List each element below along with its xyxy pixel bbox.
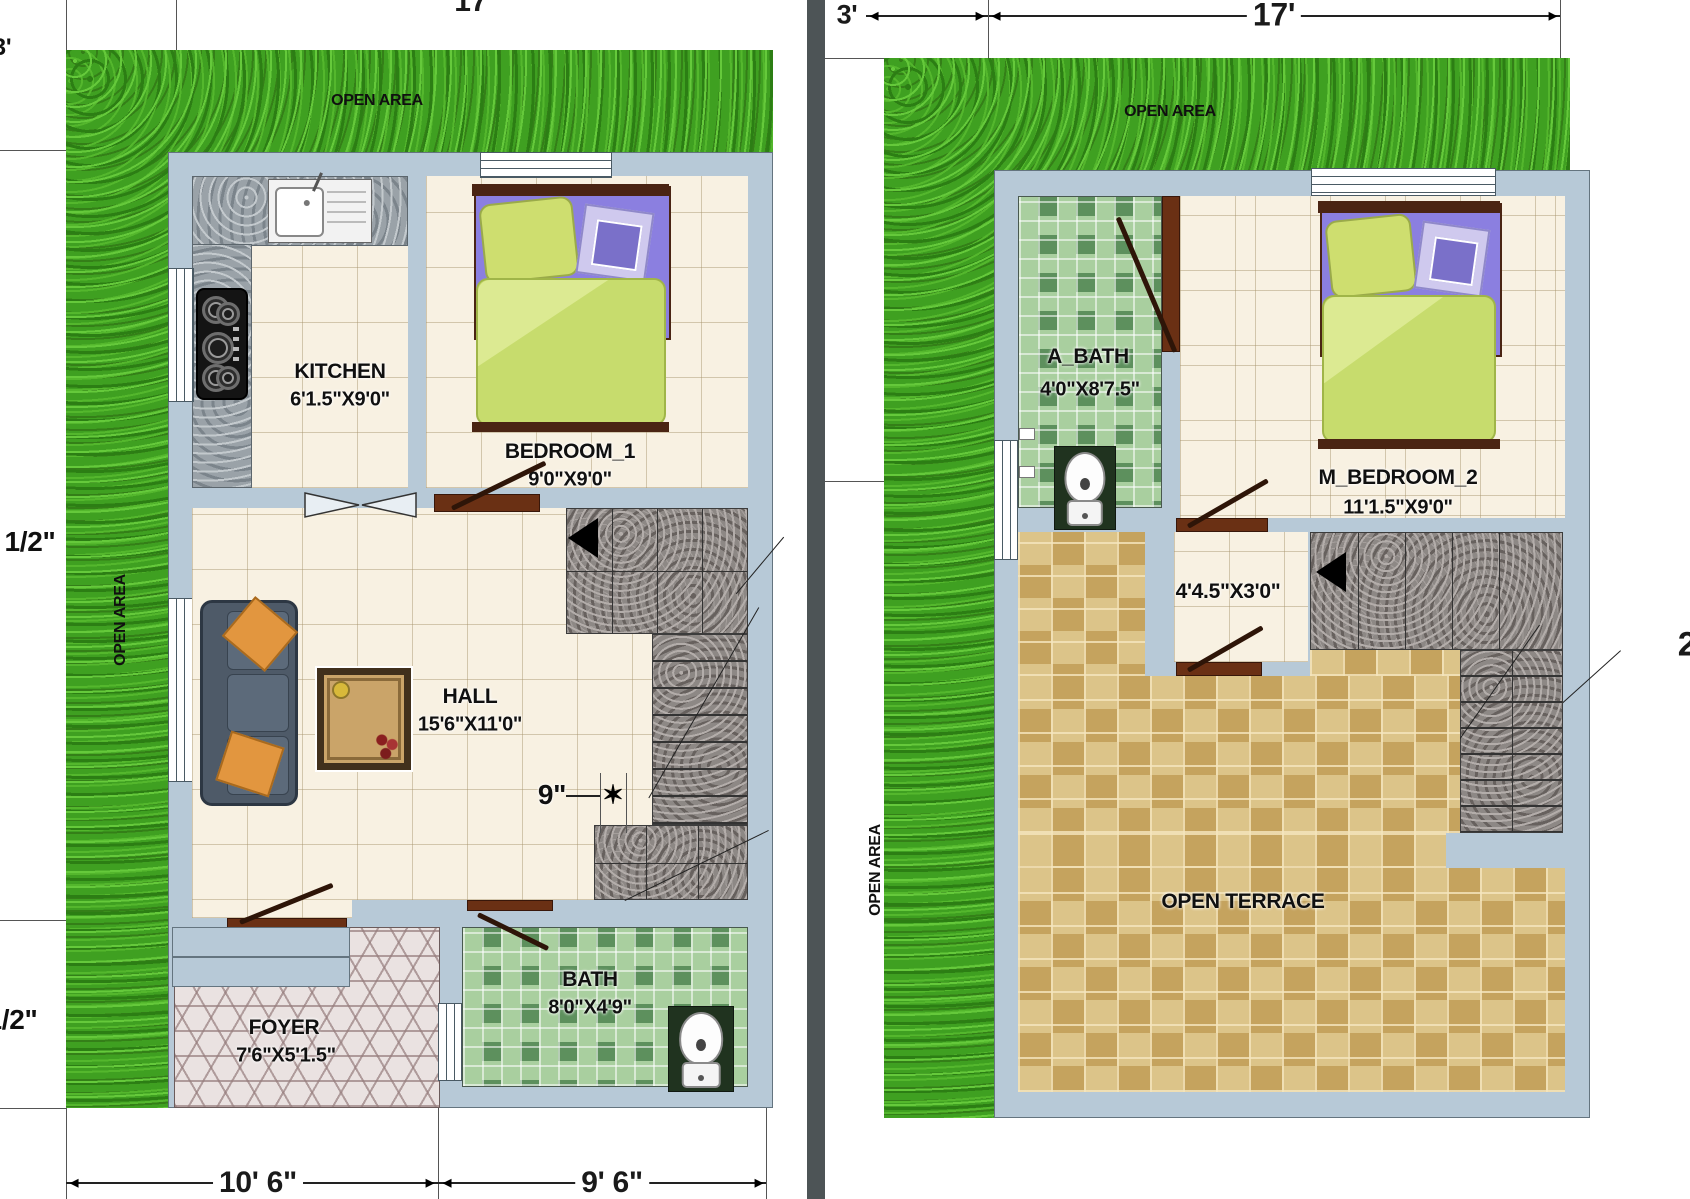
mbedroom2-size: 11'1.5"X9'0" [1343,497,1452,520]
open-area-side-grass [884,58,994,1118]
open-area-side-label: OPEN AREA [867,824,885,916]
extension-line [0,150,66,151]
bed-pillow [1324,213,1418,300]
hall-side-window [168,598,194,782]
stair-flight-right [1460,650,1563,833]
bed-duvet [476,278,666,426]
dim-bottom-left: 10' 6" [213,1166,303,1199]
toilet-button [1082,513,1088,519]
stair-direction-arrow-icon [1316,552,1346,592]
dim-side-right: 2 [1672,626,1690,665]
dim-side-lower: 1/2" [0,1004,38,1036]
arrowhead: ► [423,1176,438,1191]
rug-icon [317,668,411,770]
burner [202,332,234,364]
landing-size: 4'4.5"X3'0" [1176,580,1281,604]
sink-drainboard [327,191,366,231]
bed-headboard [1318,201,1500,213]
kitchen-label: KITCHEN [294,360,385,384]
bed-footboard [472,422,669,432]
dim-tick [626,773,627,833]
abath-label: A_BATH [1047,345,1129,369]
mbedroom2-window [1311,168,1496,196]
bedroom1-label: BEDROOM_1 [505,440,635,464]
hall-label: HALL [443,685,498,709]
toilet-hole [696,1039,706,1051]
arrowhead: ► [752,1176,767,1191]
dim-bottom-right: 9' 6" [575,1166,649,1199]
floor-plan-canvas: 17' 3' 1/2" 1/2" OPEN AREA OPEN AREA K [0,0,1690,1199]
passage-bowtie-icon [304,492,417,518]
stove-knobs [233,327,239,366]
open-terrace-label: OPEN TERRACE [1161,890,1324,914]
bed-icon [1320,203,1498,445]
toilet-icon [1054,446,1116,530]
bath-vent-window [438,1003,462,1081]
bath-door-sill [467,900,553,911]
bed-headboard [472,184,669,196]
stair-run-upper [1310,532,1563,650]
extension-line [1560,0,1561,58]
burner [216,302,240,326]
bed-icon [474,186,667,428]
plan-divider-bar [807,0,825,1199]
bed-duvet-fold [1324,297,1443,383]
arrowhead: ◄ [867,9,882,24]
bedroom1-window [480,152,612,178]
dim-leader-line [566,795,600,797]
gas-stove-icon [196,288,248,400]
bath-label: BATH [562,968,618,992]
extension-line [825,481,884,482]
bed-deco-pillow-inner [591,219,643,271]
entry-step [172,957,350,987]
side-window [994,440,1018,560]
rug-flowers [374,731,400,761]
stair-offset-dim: 9" [538,779,566,811]
rug-motif [332,681,350,699]
dimension-line [866,15,988,17]
toilet-button [698,1075,704,1081]
bed-deco-pillow [575,203,654,282]
bed-pillow [478,195,580,284]
terrace-left [1018,532,1145,676]
dimension-line [66,1182,766,1184]
bed-duvet [1322,295,1496,443]
arrowhead: ◄ [67,1176,82,1191]
stair-landing-lower [594,825,748,900]
bath-fixture [1019,428,1035,440]
open-area-top-label: OPEN AREA [331,92,423,110]
hall-size: 15'6"X11'0" [418,714,522,737]
extension-line [825,58,884,59]
bath-size: 8'0"X4'9" [548,997,632,1020]
foyer-size: 7'6"X5'1.5" [236,1045,336,1068]
abath-size: 4'0"X8'7.5" [1040,379,1140,402]
open-area-top-label: OPEN AREA [1124,103,1216,121]
foyer-label: FOYER [249,1016,320,1040]
bed-deco-pillow [1414,221,1491,298]
dim-setback-left: 3' [831,0,864,31]
dim-setback-left: 3' [0,34,11,62]
terrace-strip [1310,650,1460,676]
open-area-side-label: OPEN AREA [112,574,130,666]
bedroom1-size: 9'0"X9'0" [528,469,612,492]
dim-side-upper: 1/2" [5,526,56,558]
dim-top-width: 17' [1247,0,1301,34]
arrowhead: ◄ [440,1176,455,1191]
terrace-mid2 [1018,833,1446,868]
kitchen-sink-icon [268,179,372,243]
bed-footboard [1318,439,1500,449]
arrowhead: ◄ [989,9,1004,24]
bed-duvet-fold [478,280,608,366]
mbedroom2-label: M_BEDROOM_2 [1319,466,1478,490]
dim-star-marker: ✶ [602,780,624,811]
toilet-icon [668,1006,734,1092]
bed-deco-pillow-inner [1428,236,1479,287]
arrowhead: ► [973,9,988,24]
dim-tick [600,773,601,833]
kitchen-side-window [168,268,194,402]
bath-fixture [1019,466,1035,478]
entry-step [172,927,350,957]
sink-drain [304,200,310,206]
kitchen-size: 6'1.5"X9'0" [290,389,390,412]
dim-top-width: 17' [448,0,500,19]
burner [216,366,240,390]
bedroom1-door-sill [434,494,540,512]
sink-basin [275,187,324,237]
terrace-mid [1018,676,1460,833]
arrowhead: ► [1546,9,1561,24]
stair-direction-arrow-icon [568,518,598,558]
extension-line [0,1108,66,1109]
toilet-hole [1080,478,1090,490]
